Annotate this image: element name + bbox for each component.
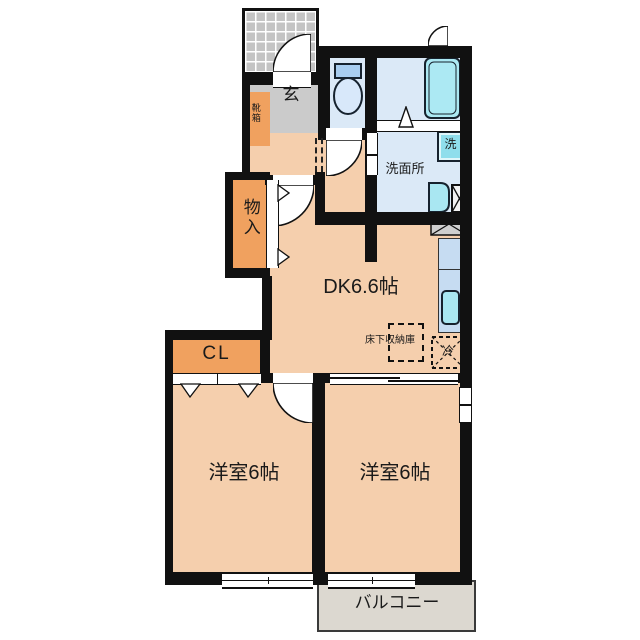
kitchen-sink-icon <box>441 290 460 325</box>
wall <box>318 46 472 58</box>
wall <box>313 572 328 585</box>
toilet-door-icon <box>326 140 362 176</box>
entrance-door-icon <box>273 34 311 72</box>
window-icon <box>459 387 472 405</box>
balcony-label: バルコニー <box>322 594 472 613</box>
vent-window-icon <box>428 26 448 46</box>
storage-door-swing-icon <box>277 248 290 266</box>
wall <box>415 572 472 585</box>
wall <box>260 373 273 383</box>
wall <box>377 212 472 225</box>
refrigerator-label: 冷 <box>431 345 465 358</box>
entrance-label: 玄 <box>271 86 311 105</box>
toilet-icon <box>332 60 364 116</box>
shoe-cabinet-label: 靴箱 <box>250 103 260 123</box>
wall <box>460 46 472 585</box>
bath-door-icon <box>398 106 414 128</box>
window-icon <box>328 572 415 589</box>
bedroom-door-icon <box>273 383 313 423</box>
toilet-door-gap <box>326 128 362 140</box>
wall <box>165 330 173 585</box>
storage-door-swing-icon <box>277 184 290 202</box>
floor-plan: 玄 靴箱 物入 CL DK6.6帖 床下収納庫 冷 洗 洗面所 洋室6帖 洋室6… <box>0 0 640 640</box>
entrance-step-line <box>315 138 317 172</box>
wall <box>318 46 330 128</box>
wall <box>365 212 377 262</box>
bath-door-band <box>377 120 460 132</box>
wall <box>313 175 318 185</box>
bedroom-left-label: 洋室6帖 <box>174 462 314 484</box>
underfloor-storage-label: 床下収納庫 <box>350 335 430 346</box>
wall <box>311 72 318 85</box>
storage-label: 物入 <box>240 198 259 238</box>
dk-bedroom-sliding-door <box>330 373 458 385</box>
closet-door-swing-icon <box>238 383 259 398</box>
dining-kitchen-label: DK6.6帖 <box>291 276 431 298</box>
bedroom-right-label: 洋室6帖 <box>325 462 465 484</box>
wall <box>242 72 250 175</box>
exterior-notch <box>225 278 262 332</box>
window-icon <box>459 405 472 423</box>
bathtub-icon <box>424 57 461 119</box>
window-icon <box>222 572 313 589</box>
washroom-label: 洗面所 <box>365 162 445 176</box>
closet-door-swing-icon <box>180 383 201 398</box>
washing-machine-label: 洗 <box>437 138 464 151</box>
wall <box>225 172 233 278</box>
washbasin-icon <box>422 182 450 213</box>
wall <box>165 330 270 340</box>
closet-label: CL <box>173 344 260 365</box>
entrance-step-line <box>321 138 323 172</box>
bedroom-door-gap <box>273 373 313 383</box>
wall <box>165 572 222 585</box>
